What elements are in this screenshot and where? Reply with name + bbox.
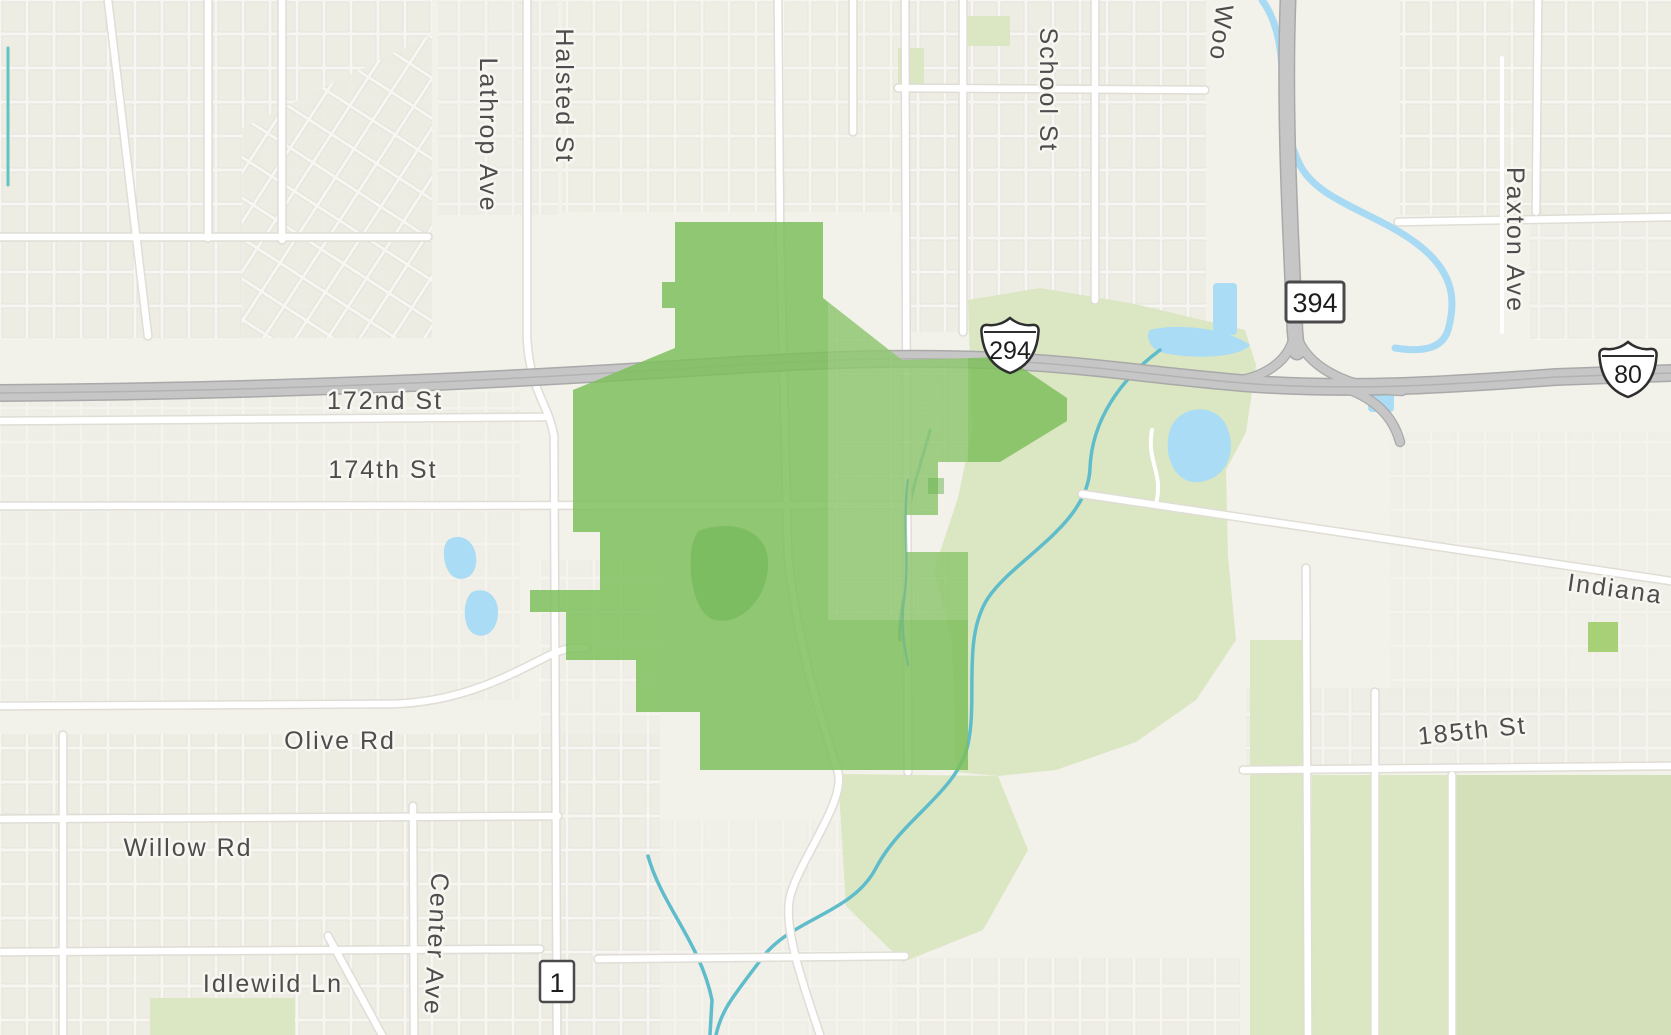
road-label-school-st: School St (1034, 27, 1062, 152)
svg-text:294: 294 (989, 337, 1031, 365)
road-label-172nd-st: 172nd St (327, 387, 443, 415)
road-label-halsted-st: Halsted St (550, 28, 578, 163)
park-strip (1250, 640, 1305, 1035)
road-label-olive-rd: Olive Rd (284, 727, 396, 755)
region-inner-park-square (928, 478, 944, 494)
park-small-top-a (962, 16, 1010, 46)
svg-text:80: 80 (1614, 361, 1642, 389)
pond-large (1168, 409, 1231, 482)
park-bottom-left (150, 998, 295, 1035)
pond-west-b (465, 590, 498, 636)
road-label-idlewild-ln: Idlewild Ln (203, 970, 343, 998)
route-394-shield: 394 (1286, 282, 1344, 322)
svg-text:394: 394 (1292, 288, 1337, 318)
road-label-lathrop-ave: Lathrop Ave (474, 58, 502, 213)
svg-text:1: 1 (549, 968, 564, 998)
map-canvas[interactable]: Halsted St Lathrop Ave School St Woo Pax… (0, 0, 1671, 1035)
route-1-shield: 1 (540, 961, 574, 1002)
road-label-willow-rd: Willow Rd (123, 834, 252, 862)
park-southeast-alt (1455, 775, 1671, 1035)
interstate-294-shield: 294 (981, 318, 1038, 373)
road-label-paxton-ave: Paxton Ave (1501, 167, 1529, 313)
park-square-east (1588, 622, 1618, 652)
pond-rect-north (1213, 283, 1237, 335)
road-label-174th-st: 174th St (328, 456, 437, 484)
